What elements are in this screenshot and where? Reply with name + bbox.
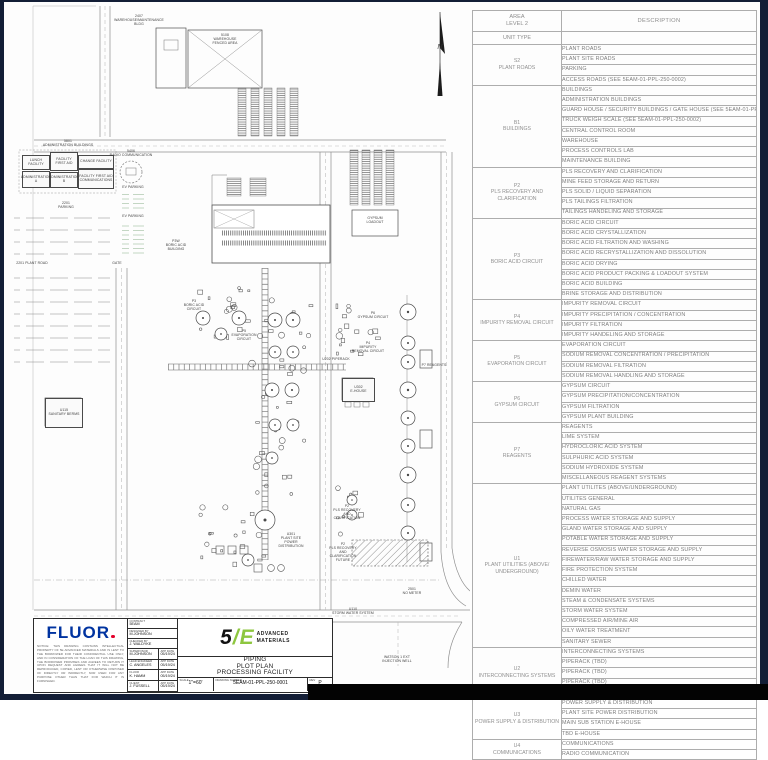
legend-description-cell: PLS SOLID / LIQUID SEPARATION xyxy=(562,188,757,198)
legend-description-cell: GYPSUM PLANT BUILDING xyxy=(562,412,757,422)
proprietary-notice: NOTICE: THIS DRAWING CONTAINS INTELLECTU… xyxy=(37,645,124,684)
legend-description-cell: BORIC ACID PRODUCT PACKING & LOADOUT SYS… xyxy=(562,269,757,279)
equipment-shape xyxy=(256,422,260,424)
fluor-logo: FLUOR xyxy=(34,623,127,643)
plot-label-piperack: U202 PIPERACK xyxy=(314,358,358,362)
equipment-shape xyxy=(338,328,342,332)
unit-name: REAGENTS xyxy=(473,453,561,460)
equipment-shape xyxy=(249,360,256,367)
plot-label-ev-parking-2: EV PARKING xyxy=(118,215,148,219)
equipment-shape xyxy=(240,545,245,549)
equipment-shape xyxy=(234,534,237,537)
legend-description-cell: FIREWATER/RAW WATER STORAGE AND SUPPLY xyxy=(562,555,757,565)
equipment-shape xyxy=(198,290,203,294)
tank-center-dot xyxy=(407,445,409,447)
legend-description-cell: IMPURITY FILTRATION xyxy=(562,320,757,330)
plot-label-administration-b: ADMINISTRATION B xyxy=(50,172,78,188)
equipment-shape xyxy=(276,406,278,408)
legend-description-cell: PLS TAILINGS FILTRATION xyxy=(562,198,757,208)
equipment-shape xyxy=(233,562,237,567)
equipment-shape xyxy=(199,513,202,516)
logo-5-glyph: 5 xyxy=(220,626,232,650)
legend-description-cell: BORIC ACID BUILDING xyxy=(562,280,757,290)
tank-center-dot xyxy=(407,417,409,419)
tank-center-dot xyxy=(220,333,222,335)
equipment-shape xyxy=(200,505,205,510)
titleblock-row-fluor: FLUORK. HAMMAPP DATE05/19/24 xyxy=(128,670,177,681)
title-block-main-cell: 5/E ADVANCED MATERIALS PIPING PLOT PLAN … xyxy=(178,619,332,692)
equipment-shape xyxy=(227,297,232,302)
legend-description-cell: TAILINGS HANDELING AND STORAGE xyxy=(562,208,757,218)
legend-description-cell: CENTRAL CONTROL ROOM xyxy=(562,126,757,136)
equipment-shape xyxy=(303,439,306,442)
legend-description-cell: OILY WATER TREATMENT xyxy=(562,627,757,637)
equipment-shape xyxy=(353,491,358,495)
equipment-shape xyxy=(306,333,310,337)
legend-row: B1BUILDINGSBUILDINGS xyxy=(473,85,757,95)
equipment-shape xyxy=(245,320,250,322)
equipment-shape xyxy=(303,346,306,349)
equipment-shape xyxy=(338,532,342,536)
tank-center-dot xyxy=(274,351,276,353)
legend-unit-cell: P2PLS RECOVERY AND CLARIFICATION xyxy=(473,167,562,218)
equipment-shape xyxy=(279,332,285,338)
plot-label-parking: 2201 PARKING xyxy=(46,202,86,210)
titleblock-row-checked: CHECKED BYJ. WALDYKE xyxy=(128,639,177,649)
plot-label-warehouse-fenced: 5108 WAREHOUSE FENCED AREA xyxy=(198,34,252,46)
unit-name: COMMUNICATIONS xyxy=(473,750,561,757)
equipment-shape xyxy=(269,330,273,333)
unit-name: PLS RECOVERY AND CLARIFICATION xyxy=(473,189,561,202)
designed-value: M.JOHNSON xyxy=(128,632,177,636)
legend-description-cell: GYPSUM PRECIPITATION/CONCENTRATION xyxy=(562,392,757,402)
plot-label-no-meter: 2501 NO METER xyxy=(398,588,426,596)
equipment-shape xyxy=(290,493,293,496)
plot-label-reagents: P7 REAGENTS xyxy=(418,364,450,368)
equipment-shape xyxy=(234,551,236,554)
equipment-shape xyxy=(255,456,262,463)
legend-description-cell: CHILLED WATER xyxy=(562,576,757,586)
legend-description-cell: SODIUM REMOVAL HANDLING AND STORAGE xyxy=(562,372,757,382)
equipment-shape xyxy=(347,304,351,308)
plot-label-gypsum-loadout: GYPSUM LOADOUT xyxy=(358,217,392,225)
legend-description-cell: COMPRESSED AIR/MINE AIR xyxy=(562,617,757,627)
equipment-shape xyxy=(344,324,348,329)
titleblock-row-supervisor: SUPERVISORM.JOHNSONAPP DATE05/19/24 xyxy=(128,649,177,660)
plot-label-injection-well: WATSON 1 EXT INJECTION WELL xyxy=(374,656,420,664)
tank-center-dot xyxy=(274,424,276,426)
legend-description-cell: SODIUM REMOVAL CONCENTRATION / PRECIPITA… xyxy=(562,351,757,361)
supervisor-date: 05/19/24 xyxy=(159,652,177,656)
app-date-cell: APP DATE05/19/24 xyxy=(158,670,177,680)
scanned-drawing-page: 2407 WAREHOUSE/MAINTENANCE BLDG5108 WARE… xyxy=(0,0,768,700)
equipment-shape xyxy=(269,298,274,303)
plot-label-e-house: U302 E-HOUSE xyxy=(342,378,375,402)
plot-label-administration-a: ADMINISTRATION A xyxy=(22,171,50,188)
client-date: 05/19/24 xyxy=(159,684,177,688)
legend-description-cell: PIPERACK (TBD) xyxy=(562,658,757,668)
checked-value: J. WALDYKE xyxy=(128,642,177,646)
legend-description-cell: UTILITES GENERAL xyxy=(562,494,757,504)
plot-label-boric-acid-circuit: P3 BORIC ACID CIRCUIT xyxy=(178,300,210,312)
plot-label-storm-water: U110 STORM WATER SYSTEM xyxy=(331,608,375,616)
legend-row: U1PLANT UTILITIES (ABOVE/ UNDERGROUND)PL… xyxy=(473,484,757,494)
tank-center-dot xyxy=(407,389,409,391)
area-legend-table: AREA LEVEL 2 DESCRIPTION UNIT TYPE S2PLA… xyxy=(472,10,757,760)
equipment-shape xyxy=(279,445,284,450)
equipment-shape xyxy=(241,521,245,523)
tank-center-dot xyxy=(271,389,273,391)
legend-description-cell: GLAND WATER STORAGE AND SUPPLY xyxy=(562,525,757,535)
plot-label-pls-recovery: P2 PLS RECOVERY AND CLARIFICATION xyxy=(326,505,368,521)
equipment-shape xyxy=(223,505,228,510)
tank-center-dot xyxy=(264,519,267,522)
logo-e-glyph: E xyxy=(240,626,254,650)
equipment-shape xyxy=(262,555,266,557)
titleblock-row-client: CLIENTJ. FUSSELLAPP DATE05/19/24 xyxy=(128,681,177,692)
legend-description-cell: EVAPORATION CIRCUIT xyxy=(562,341,757,351)
legend-description-cell: MAIN SUB STATION E-HOUSE xyxy=(562,719,757,729)
equipment-shape xyxy=(279,438,285,444)
legend-description-cell: PLANT ROADS xyxy=(562,45,757,55)
legend-description-cell: ADMINISTRATION BUILDINGS xyxy=(562,96,757,106)
legend-unit-cell: P5EVAPORATION CIRCUIT xyxy=(473,341,562,382)
legend-row: P4IMPURITY REMOVAL CIRCUITIMPURITY REMOV… xyxy=(473,300,757,310)
tank-center-dot xyxy=(292,319,294,321)
legend-description-cell: BORIC ACID RECRYSTALLIZATION AND DISSOLU… xyxy=(562,249,757,259)
legend-description-cell: INTERCONNECTING SYSTEMS xyxy=(562,647,757,657)
legend-unit-cell: P3BORIC ACID CIRCUIT xyxy=(473,218,562,300)
plot-label-evaporation-circuit: P5 EVAPORATION CIRCUIT xyxy=(227,330,261,342)
legend-row: P3BORIC ACID CIRCUITBORIC ACID CIRCUIT xyxy=(473,218,757,228)
legend-description-cell: FIRE PROTECTION SYSTEM xyxy=(562,566,757,576)
legend-description-cell: BRINE STORAGE AND DISTRIBUTION xyxy=(562,290,757,300)
legend-description-cell: BORIC ACID CIRCUIT xyxy=(562,218,757,228)
legend-description-cell: ACCESS ROADS (SEE 5EAM-01-PPL-250-0002) xyxy=(562,75,757,85)
fluor-date: 05/19/24 xyxy=(159,674,177,678)
tank-center-dot xyxy=(271,457,273,459)
legend-header-description: DESCRIPTION xyxy=(562,11,757,32)
equipment-shape xyxy=(336,486,341,491)
unit-name: BUILDINGS xyxy=(473,126,561,133)
legend-description-cell: PLS RECOVERY AND CLARIFICATION xyxy=(562,167,757,177)
equipment-shape xyxy=(282,475,286,479)
tank-center-dot xyxy=(274,319,276,321)
legend-description-cell: IMPURITY REMOVAL CIRCUIT xyxy=(562,300,757,310)
unit-name: PLANT UTILITIES (ABOVE/ UNDERGROUND) xyxy=(473,562,561,575)
plot-label-admin-header: 5801 ADMINISTRATION BUILDINGS xyxy=(22,140,114,148)
equipment-shape xyxy=(238,287,241,290)
legend-description-cell: PARKING xyxy=(562,65,757,75)
equipment-shape xyxy=(336,304,338,309)
app-date-cell: APP DATE05/19/24 xyxy=(158,660,177,670)
legend-unit-cell: S2PLANT ROADS xyxy=(473,45,562,86)
legend-description-cell: POTABLE WATER STORAGE AND SUPPLY xyxy=(562,535,757,545)
equipment-shape xyxy=(375,337,380,340)
equipment-shape xyxy=(287,372,292,375)
legend-description-cell: DEMIN WATER xyxy=(562,586,757,596)
legend-row: P2PLS RECOVERY AND CLARIFICATIONPLS RECO… xyxy=(473,167,757,177)
equipment-shape xyxy=(309,305,313,307)
plot-label-radio-communication: 5406 RADIO COMMUNICATION xyxy=(108,150,154,158)
legend-description-cell: LIME SYSTEM xyxy=(562,433,757,443)
tank-center-dot xyxy=(291,389,293,391)
fluor-logo-dot-icon xyxy=(111,635,115,639)
equipment-shape xyxy=(199,328,202,331)
unit-name: INTERCONNECTING SYSTEMS xyxy=(473,673,561,680)
scan-black-bar xyxy=(308,684,768,700)
legend-description-cell: COMMUNICATIONS xyxy=(562,739,757,749)
equipment-shape xyxy=(239,290,242,292)
legend-description-cell: PROCESS WATER STORAGE AND SUPPLY xyxy=(562,515,757,525)
legend-description-cell: BORIC ACID DRYING xyxy=(562,259,757,269)
legend-row: S2PLANT ROADSPLANT ROADS xyxy=(473,45,757,55)
unit-name: IMPURITY REMOVAL CIRCUIT xyxy=(473,320,561,327)
equipment-shape xyxy=(208,532,211,535)
legend-description-cell: PLANT SITE ROADS xyxy=(562,55,757,65)
titleblock-row-lead: LEAD ENGINEERC. ANGELESAPP DATE05/19/24 xyxy=(128,660,177,671)
equipment-shape xyxy=(256,491,260,495)
legend-description-cell: IMPURITY HANDELING AND STORAGE xyxy=(562,331,757,341)
legend-unit-cell: U3POWER SUPPLY & DISTRIBUTION xyxy=(473,699,562,740)
legend-description-cell: REVERSE OSMOSIS WATER STORAGE AND SUPPLY xyxy=(562,545,757,555)
title-block: FLUOR NOTICE: THIS DRAWING CONTAINS INTE… xyxy=(33,618,333,693)
legend-description-cell: BORIC ACID CRYSTALLIZATION xyxy=(562,228,757,238)
legend-description-cell: IMPURITY PRECIPITATION / CONCENTRATION xyxy=(562,310,757,320)
titleblock-row-designed: DESIGNED BYM.JOHNSON xyxy=(128,629,177,639)
plot-label-warehouse-maint: 2407 WAREHOUSE/MAINTENANCE BLDG xyxy=(103,15,175,27)
equipment-shape xyxy=(287,401,292,403)
equipment-shape xyxy=(201,556,203,559)
equipment-shape xyxy=(253,463,259,469)
legend-unit-cell: P4IMPURITY REMOVAL CIRCUIT xyxy=(473,300,562,341)
equipment-shape xyxy=(205,542,209,546)
legend-description-cell: TBD E-HOUSE xyxy=(562,729,757,739)
legend-unit-cell: P6GYPSUM CIRCUIT xyxy=(473,382,562,423)
equipment-shape xyxy=(341,339,345,343)
equipment-shape xyxy=(280,366,284,368)
tank-center-dot xyxy=(202,317,204,319)
legend-description-cell: BORIC ACID FILTRATION AND WASHING xyxy=(562,239,757,249)
tank-center-dot xyxy=(238,317,240,319)
equipment-shape xyxy=(250,512,254,515)
equipment-shape xyxy=(288,475,292,478)
unit-name: POWER SUPPLY & DISTRIBUTION xyxy=(473,719,561,726)
legend-row: P6GYPSUM CIRCUITGYPSUM CIRCUIT xyxy=(473,382,757,392)
plot-label-ev-parking-1: EV PARKING xyxy=(118,186,148,190)
north-arrow-label: N xyxy=(433,44,447,52)
unit-name: EVAPORATION CIRCUIT xyxy=(473,361,561,368)
legend-description-cell: PROCESS CONTROLS LAB xyxy=(562,147,757,157)
equipment-shape xyxy=(243,531,245,534)
app-date-cell: APP DATE05/19/24 xyxy=(158,649,177,659)
legend-row: P7REAGENTSREAGENTS xyxy=(473,423,757,433)
legend-row: U4COMMUNICATIONSCOMMUNICATIONS xyxy=(473,739,757,749)
tank-center-dot xyxy=(292,424,294,426)
drawing-title: PIPING PLOT PLAN PROCESSING FACILITY xyxy=(178,657,332,678)
tank-center-dot xyxy=(407,474,409,476)
legend-unit-cell: U4COMMUNICATIONS xyxy=(473,739,562,759)
tank-center-dot xyxy=(351,499,353,501)
legend-description-cell: STEAM & CONDENSATE SYSTEMS xyxy=(562,596,757,606)
legend-description-cell: POWER SUPPLY & DISTRIBUTION xyxy=(562,699,757,709)
legend-description-cell: WAREHOUSE xyxy=(562,136,757,146)
plot-label-first-aid-communications: FACILITY FIRST AID COMMUNICATIONS xyxy=(78,169,114,189)
legend-description-cell: SANITARY SEWER xyxy=(562,637,757,647)
equipment-shape xyxy=(212,549,216,553)
tank-center-dot xyxy=(407,361,409,363)
plot-plan-drawing: 2407 WAREHOUSE/MAINTENANCE BLDG5108 WARE… xyxy=(0,0,470,692)
legend-description-cell: SODIUM HYDROXIDE SYSTEM xyxy=(562,463,757,473)
legend-description-cell: BUILDINGS xyxy=(562,85,757,95)
legend-header-unit-type: UNIT TYPE xyxy=(473,32,562,45)
lead-date: 05/19/24 xyxy=(159,663,177,667)
app-date-cell: APP DATE05/19/24 xyxy=(158,681,177,692)
equipment-shape xyxy=(346,308,351,313)
legend-description-cell: SODIUM REMOVAL FILTRATION xyxy=(562,361,757,371)
plot-label-sanitary-berms: U115 SANITARY BERMS xyxy=(45,398,83,428)
legend-description-cell: MAINTENANCE BUILDING xyxy=(562,157,757,167)
equipment-shape xyxy=(258,559,262,561)
legend-description-cell: STORM WATER SYSTEM xyxy=(562,607,757,617)
legend-description-cell: TRUCK WEIGH SCALE (SEE 5EAM-01-PPL-250-0… xyxy=(562,116,757,126)
legend-header-area: AREA LEVEL 2 xyxy=(473,11,562,32)
legend-description-cell: MINE FEED STORAGE AND RETURN xyxy=(562,177,757,187)
legend-description-cell: NATURAL GAS xyxy=(562,504,757,514)
legend-row: U2INTERCONNECTING SYSTEMSINTERCONNECTING… xyxy=(473,647,757,657)
legend-row: U3POWER SUPPLY & DISTRIBUTIONPOWER SUPPL… xyxy=(473,699,757,709)
plot-label-plant-road: 2201 PLANT ROAD xyxy=(9,262,55,266)
legend-description-cell: RADIO COMMUNICATION xyxy=(562,750,757,760)
equipment-shape xyxy=(336,333,343,340)
legend-description-cell: PIPERACK (TBD) xyxy=(562,668,757,678)
tank-center-dot xyxy=(292,351,294,353)
tank-center-dot xyxy=(407,504,409,506)
logo-wordmark: ADVANCED MATERIALS xyxy=(257,631,290,644)
legend-header-spacer xyxy=(562,32,757,45)
legend-row: P5EVAPORATION CIRCUITEVAPORATION CIRCUIT xyxy=(473,341,757,351)
plot-label-pls-recovery-future: P2 PLS RECOVERY AND CLARIFICATION FUTURE xyxy=(327,543,359,563)
legend-description-cell: GYPSUM CIRCUIT xyxy=(562,382,757,392)
unit-name: GYPSUM CIRCUIT xyxy=(473,402,561,409)
legend-description-cell: REAGENTS xyxy=(562,423,757,433)
plot-label-lunch-facility: LUNCH FACILITY xyxy=(22,155,50,170)
legend-unit-cell: B1BUILDINGS xyxy=(473,85,562,167)
equipment-shape xyxy=(248,290,250,292)
unit-name: BORIC ACID CIRCUIT xyxy=(473,259,561,266)
scale-cell: SCALE 1"=60' xyxy=(178,678,214,691)
titleblock-row-contract: CONTRACT5EAM xyxy=(128,619,177,629)
legend-unit-cell: U1PLANT UTILITIES (ABOVE/ UNDERGROUND) xyxy=(473,484,562,648)
tank-center-dot xyxy=(407,532,409,534)
equipment-shape xyxy=(301,368,307,374)
equipment-shape xyxy=(336,352,338,355)
equipment-shape xyxy=(355,330,359,334)
equipment-shape xyxy=(256,532,262,538)
drawing-number-value: 5EAM-01-PPL-250-0001 xyxy=(214,681,307,687)
title-block-signature-grid: CONTRACT5EAMDESIGNED BYM.JOHNSONCHECKED … xyxy=(128,619,178,692)
plot-label-power-distribution: U301 PLANT SITE POWER DISTRIBUTION xyxy=(272,533,310,549)
equipment-shape xyxy=(339,344,341,346)
plot-label-impurity-removal: P4 IMPURITY REMOVAL CIRCUIT xyxy=(348,342,388,354)
tank-center-dot xyxy=(407,342,409,344)
legend-description-cell: GUARD HOUSE / SECURITY BUILDINGS / GATE … xyxy=(562,106,757,116)
legend-description-cell: GYPSUM FILTRATION xyxy=(562,402,757,412)
plot-label-boric-acid-building: P3W BORIC ACID BUILDING xyxy=(159,240,193,252)
legend-description-cell: MISCELLANEOUS REAGENT SYSTEMS xyxy=(562,474,757,484)
tank-center-dot xyxy=(247,559,249,561)
unit-name: PLANT ROADS xyxy=(473,65,561,72)
logo-slash-glyph: / xyxy=(233,626,239,650)
scale-value: 1"=60' xyxy=(178,681,213,687)
tank-center-dot xyxy=(407,311,409,313)
5e-advanced-materials-logo: 5/E ADVANCED MATERIALS xyxy=(178,619,332,657)
title-block-company-cell: FLUOR NOTICE: THIS DRAWING CONTAINS INTE… xyxy=(34,619,128,692)
plot-label-gate: GATE xyxy=(107,262,127,266)
equipment-shape xyxy=(289,365,295,371)
drawing-number-cell: DRAWING NUMBER 5EAM-01-PPL-250-0001 xyxy=(214,678,308,691)
legend-description-cell: PLANT UTILITES (ABOVE/UNDERGROUND) xyxy=(562,484,757,494)
equipment-shape xyxy=(299,332,302,334)
plot-label-facility-first-aid: FACILITY FIRST AID xyxy=(50,152,78,171)
equipment-shape xyxy=(342,315,346,318)
legend-description-cell: SULPHURIC ACID SYSTEM xyxy=(562,453,757,463)
equipment-shape xyxy=(221,550,223,552)
plot-label-gypsum-circuit: P6 GYPSUM CIRCUIT xyxy=(355,312,391,320)
legend-unit-cell: P7REAGENTS xyxy=(473,423,562,484)
contract-value: 5EAM xyxy=(128,622,177,626)
legend-description-cell: HYDROCLORIC ACID SYSTEM xyxy=(562,443,757,453)
legend-description-cell: PLANT SITE POWER DISTRIBUTION xyxy=(562,709,757,719)
equipment-shape xyxy=(280,359,284,361)
